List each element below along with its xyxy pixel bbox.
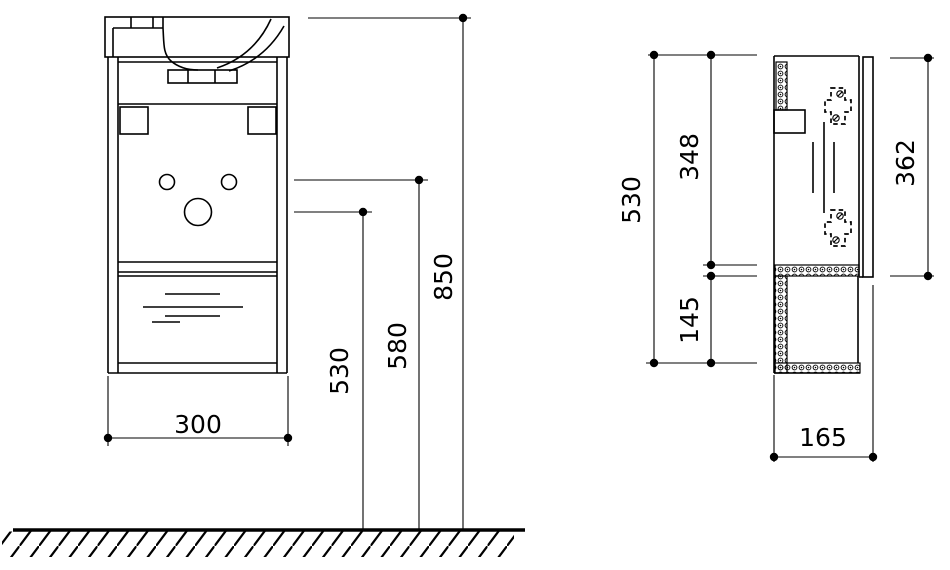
cabinet-front (108, 57, 287, 373)
siphon-hole (185, 199, 212, 226)
dim-front-cabinet-width: 300 (104, 376, 292, 446)
technical-drawing-page: 300 850 580 530 (0, 0, 950, 570)
dim-label-side-depth: 165 (799, 423, 847, 452)
mounting-bracket-left (120, 107, 148, 134)
mounting-block (774, 110, 805, 133)
ground-hatch (2, 530, 525, 557)
dim-front-supply-height: 580 (294, 176, 428, 530)
bowl-right-curve-outer (217, 19, 271, 68)
dim-label-side-door-height: 362 (891, 139, 920, 187)
dim-label-side-shelf-section: 145 (675, 296, 704, 344)
dim-label-front-siphon-height: 530 (325, 347, 354, 395)
dim-front-siphon-height: 530 (294, 208, 372, 530)
dim-label-front-supply-height: 580 (383, 322, 412, 370)
hinge-top (825, 88, 851, 124)
bottom-panel-section (775, 265, 859, 276)
front-view: 300 850 580 530 (104, 14, 471, 530)
hinge-bottom (825, 210, 851, 246)
dim-front-basin-top-height: 850 (308, 14, 471, 530)
cabinet-side-section (774, 56, 873, 373)
wall-rail-section (776, 62, 787, 110)
supply-hole-right (222, 175, 237, 190)
dim-label-front-basin-top-height: 850 (429, 253, 458, 301)
mounting-bracket-right (248, 107, 276, 134)
bowl-left-curve (163, 28, 198, 70)
dim-side-upper-section: 348 (675, 51, 757, 269)
overflow-drain-detail (168, 70, 237, 83)
open-shelf-section (774, 276, 860, 373)
washbasin (105, 17, 289, 83)
side-view: 530 348 145 362 (617, 51, 934, 462)
dim-label-front-cabinet-width: 300 (174, 410, 222, 439)
glass-shelf-reflection-lines (143, 294, 243, 322)
door-panel (859, 57, 873, 277)
dim-label-side-body-height: 530 (617, 176, 646, 224)
dim-side-door-height: 362 (890, 54, 934, 280)
supply-hole-left (160, 175, 175, 190)
vanity-dimension-drawing: 300 850 580 530 (0, 0, 950, 570)
dim-side-shelf-section: 145 (675, 272, 757, 367)
bowl-right-curve-inner (229, 26, 284, 71)
panel-grain-lines (813, 122, 834, 213)
dim-label-side-upper-section: 348 (675, 133, 704, 181)
